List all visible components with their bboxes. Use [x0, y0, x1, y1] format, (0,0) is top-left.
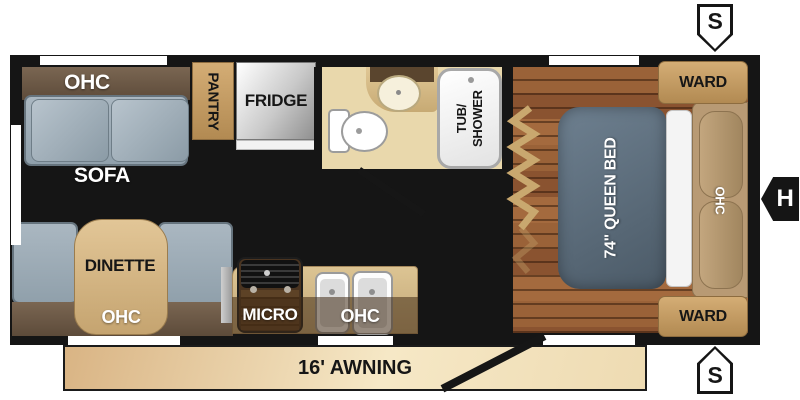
- floorplan-canvas: OHC SOFA DINETTE OHC PANTRY FRIDGE MICRO…: [0, 0, 800, 400]
- heater-marker-label: H: [771, 177, 799, 221]
- speaker-marker-bottom-label: S: [697, 360, 733, 390]
- overlay-lines: [0, 0, 800, 400]
- speaker-marker-top-label: S: [697, 6, 733, 36]
- entry-door-swing: [446, 338, 541, 387]
- accordion-door: [513, 108, 534, 228]
- accordion-door-shadow: [516, 228, 534, 272]
- bathroom-door-swing: [362, 172, 421, 212]
